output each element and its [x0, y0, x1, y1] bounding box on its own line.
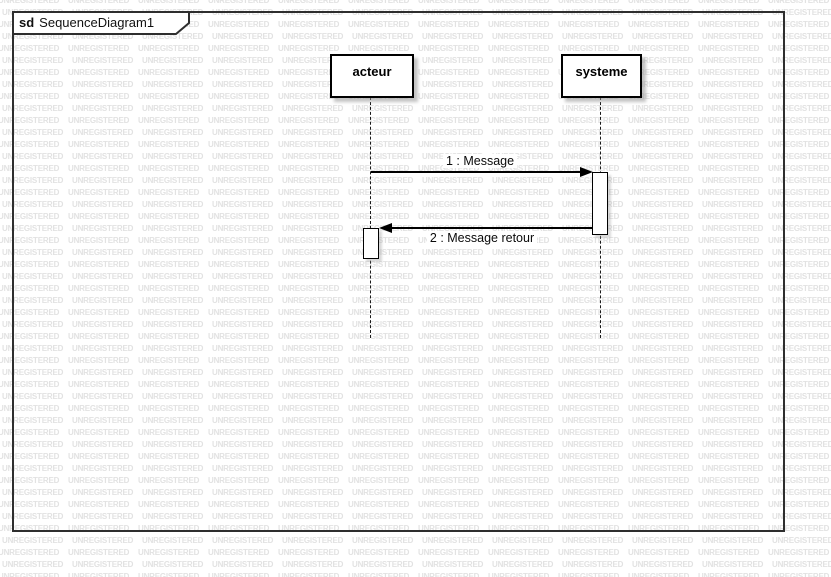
lifeline-acteur-label: acteur	[352, 64, 391, 79]
message-1-text: 1 : Message	[443, 154, 517, 168]
message-1-arrowhead-icon	[580, 167, 593, 177]
frame-title: sd SequenceDiagram1	[19, 11, 154, 34]
activation-bar-acteur[interactable]	[363, 228, 379, 259]
message-1-label[interactable]: 1 : Message	[373, 154, 587, 168]
watermark-row: UNREGISTEREDUNREGISTEREDUNREGISTEREDUNRE…	[2, 560, 831, 569]
activation-bar-systeme[interactable]	[592, 172, 608, 235]
message-1-line[interactable]	[371, 171, 581, 173]
lifeline-head-acteur[interactable]: acteur	[330, 54, 414, 98]
lifeline-systeme-label: systeme	[575, 64, 627, 79]
watermark-row: UNREGISTEREDUNREGISTEREDUNREGISTEREDUNRE…	[0, 572, 831, 577]
watermark-row: UNREGISTEREDUNREGISTEREDUNREGISTEREDUNRE…	[0, 0, 831, 5]
frame-keyword: sd	[19, 15, 34, 30]
lifeline-head-systeme[interactable]: systeme	[561, 54, 642, 98]
message-2-text: 2 : Message retour	[427, 231, 537, 245]
frame-title-tab[interactable]: sd SequenceDiagram1	[12, 11, 191, 36]
lifeline-acteur[interactable]	[370, 97, 371, 338]
diagram-canvas: UNREGISTEREDUNREGISTEREDUNREGISTEREDUNRE…	[0, 0, 831, 577]
watermark-row: UNREGISTEREDUNREGISTEREDUNREGISTEREDUNRE…	[2, 536, 831, 545]
watermark-row: UNREGISTEREDUNREGISTEREDUNREGISTEREDUNRE…	[0, 548, 831, 557]
frame-title-text: SequenceDiagram1	[39, 15, 154, 30]
message-2-label[interactable]: 2 : Message retour	[381, 231, 583, 245]
message-2-line[interactable]	[391, 227, 593, 229]
